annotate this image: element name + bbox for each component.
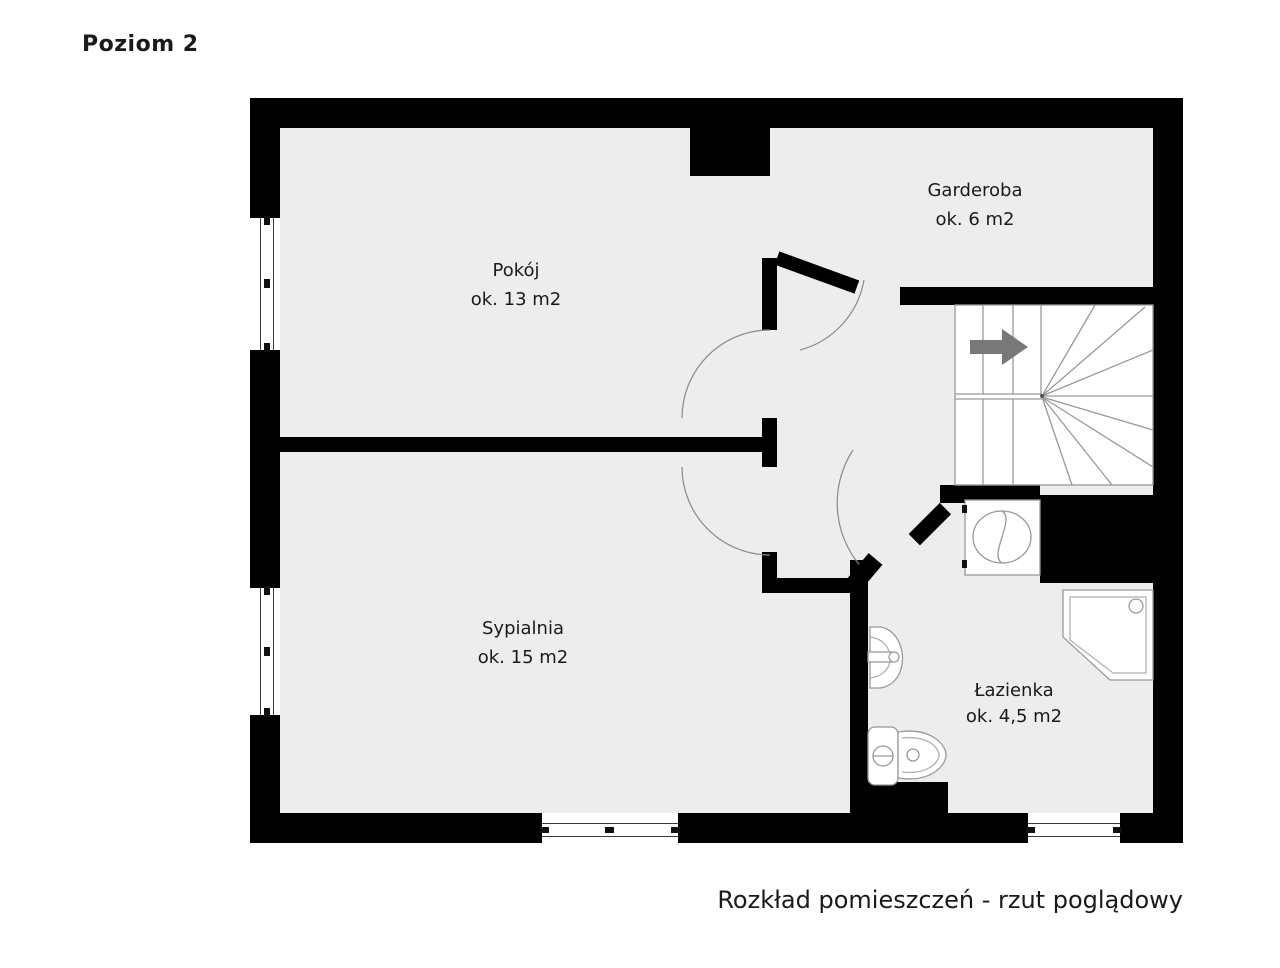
sink-icon bbox=[868, 627, 903, 688]
plan-caption: Rozkład pomieszczeń - rzut poglądowy bbox=[717, 886, 1183, 914]
room-label-lazienka: Łazienka ok. 4,5 m2 bbox=[904, 678, 1124, 730]
room-name: Łazienka bbox=[904, 678, 1124, 704]
sypialnia-door bbox=[682, 467, 770, 555]
room-area: ok. 13 m2 bbox=[406, 285, 626, 314]
pokoj-door bbox=[682, 330, 770, 418]
room-area: ok. 4,5 m2 bbox=[904, 704, 1124, 730]
room-name: Garderoba bbox=[865, 176, 1085, 205]
room-area: ok. 6 m2 bbox=[865, 205, 1085, 234]
floor-plan: Pokój ok. 13 m2 Garderoba ok. 6 m2 Sypia… bbox=[250, 98, 1183, 843]
room-name: Pokój bbox=[406, 256, 626, 285]
room-label-pokoj: Pokój ok. 13 m2 bbox=[406, 256, 626, 314]
staircase bbox=[955, 305, 1153, 485]
room-label-sypialnia: Sypialnia ok. 15 m2 bbox=[413, 614, 633, 672]
garderoba-door bbox=[775, 251, 864, 350]
toilet-icon bbox=[868, 727, 946, 785]
room-label-garderoba: Garderoba ok. 6 m2 bbox=[865, 176, 1085, 234]
page-title: Poziom 2 bbox=[82, 32, 199, 57]
room-area: ok. 15 m2 bbox=[413, 643, 633, 672]
corner-shower-icon bbox=[1063, 590, 1153, 680]
lazienka-door bbox=[837, 450, 951, 597]
room-name: Sypialnia bbox=[413, 614, 633, 643]
washing-machine-icon bbox=[962, 500, 1040, 575]
